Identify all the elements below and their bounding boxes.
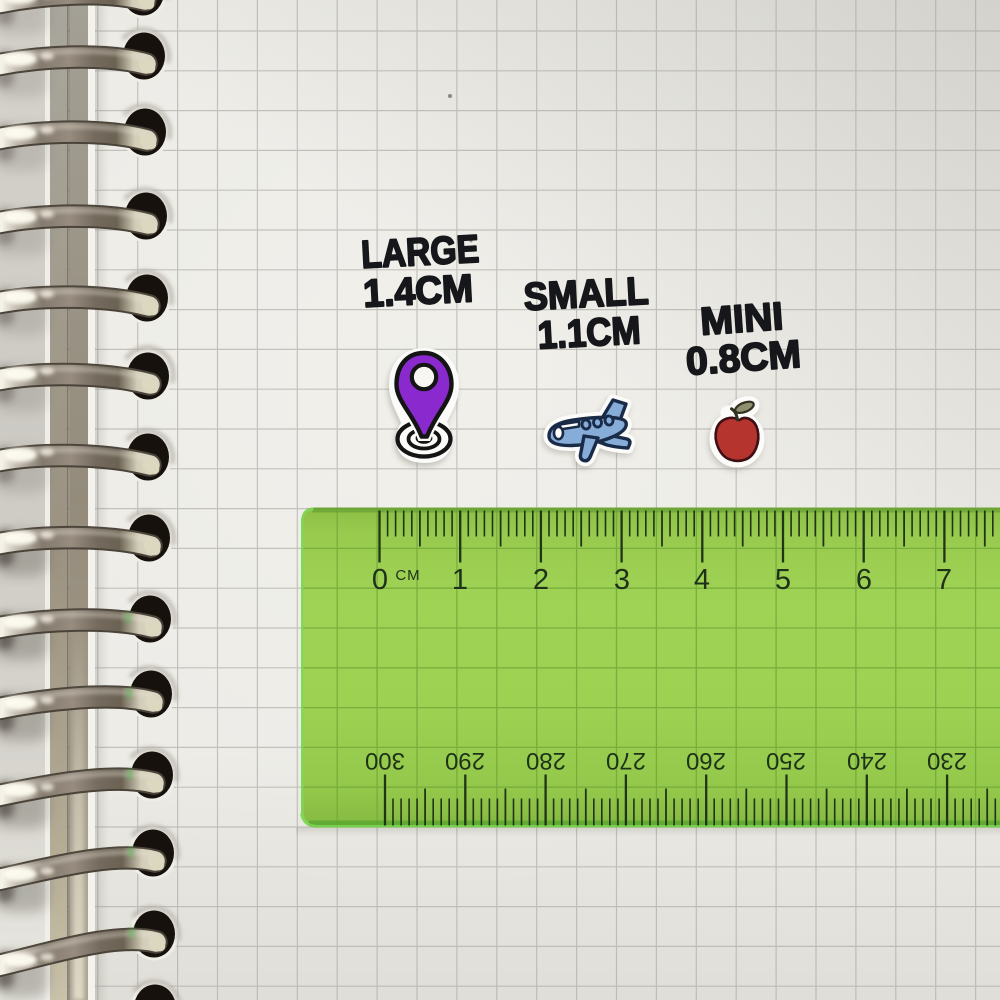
svg-text:1: 1	[452, 564, 468, 596]
svg-text:3: 3	[614, 564, 630, 596]
svg-text:0.8CM: 0.8CM	[685, 333, 803, 384]
svg-text:CM: CM	[395, 567, 420, 584]
svg-text:240: 240	[847, 747, 887, 774]
svg-text:7: 7	[936, 564, 952, 596]
svg-text:260: 260	[686, 747, 726, 774]
svg-text:5: 5	[775, 564, 791, 596]
svg-text:230: 230	[927, 747, 967, 774]
svg-text:2: 2	[533, 564, 549, 596]
svg-text:4: 4	[694, 564, 710, 596]
svg-text:1.4CM: 1.4CM	[362, 267, 474, 316]
svg-text:270: 270	[606, 747, 646, 774]
svg-text:290: 290	[445, 747, 485, 774]
svg-text:6: 6	[856, 564, 872, 596]
svg-text:1.1CM: 1.1CM	[537, 309, 642, 357]
svg-text:250: 250	[766, 747, 806, 774]
svg-text:300: 300	[365, 747, 405, 774]
svg-text:0: 0	[372, 564, 388, 596]
svg-text:280: 280	[526, 747, 566, 774]
